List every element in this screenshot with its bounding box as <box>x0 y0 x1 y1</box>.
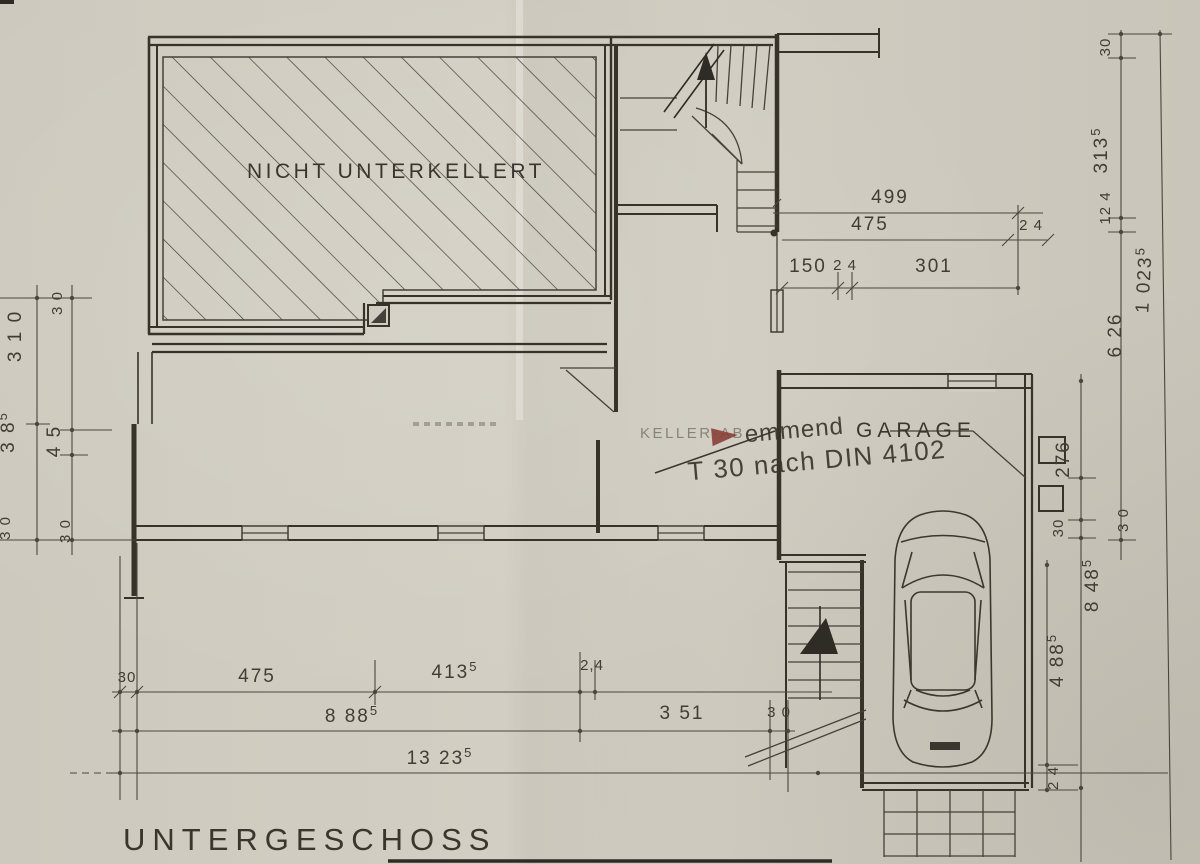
floor-plan: 499 475 2 4 150 2 4 301 30 3135 12 4 6 2… <box>0 0 1200 864</box>
dim-45: 4 5 <box>44 425 65 457</box>
hatched-area <box>148 37 779 334</box>
dim-30-leftbottom2: 3 0 <box>57 519 74 543</box>
dim-30-bottom2: 3 0 <box>767 704 791 721</box>
page-title: UNTERGESCHOSS <box>123 822 496 857</box>
dim-10235: 1 0235 <box>1129 246 1156 314</box>
dim-24-top: 2 4 <box>1019 217 1043 234</box>
dim-24-right: 2 4 <box>1045 766 1062 790</box>
dim-8485: 8 485 <box>1079 558 1103 612</box>
dim-24-top2: 2 4 <box>833 257 857 274</box>
dim-499: 499 <box>871 187 909 208</box>
window-symbols <box>242 290 996 544</box>
dim-3135: 3135 <box>1088 127 1112 174</box>
dim-4135: 4135 <box>432 659 479 683</box>
dim-626: 6 26 <box>1105 313 1126 358</box>
paving-grid <box>884 790 1015 857</box>
dim-30-right2: 3 0 <box>1115 508 1132 532</box>
interior-stairs <box>664 44 778 237</box>
exterior-stairs <box>745 562 866 768</box>
dim-30-leftbottom: 3 0 <box>0 516 14 540</box>
stair-direction-arrow <box>664 44 724 128</box>
dim-475-bottom: 475 <box>238 666 276 687</box>
dim-475-top: 475 <box>851 214 889 235</box>
dim-30-topright: 30 <box>1097 38 1114 57</box>
dim-351: 3 51 <box>660 703 705 724</box>
plan-drawing: 499 475 2 4 150 2 4 301 30 3135 12 4 6 2… <box>0 0 1200 864</box>
fire-door-stamp: emmend T 30 nach DIN 4102 <box>684 404 947 486</box>
dim-13235: 13 235 <box>407 745 474 769</box>
stamp-line1: emmend <box>744 413 845 449</box>
dim-124: 12 4 <box>1097 191 1114 224</box>
dim-385: 3 85 <box>0 411 19 453</box>
dim-310: 3 1 0 <box>5 310 26 362</box>
car <box>893 511 992 767</box>
label-nicht-unterkellert: NICHT UNTERKELLERT <box>247 160 545 183</box>
dim-30-right: 30 <box>1050 519 1067 538</box>
dim-30-bottom: 30 <box>118 669 137 686</box>
dim-24-bottom: 2,4 <box>580 657 604 674</box>
dim-30-lefttop: 3 0 <box>49 291 66 315</box>
exterior-stair-arrow-head <box>800 618 838 654</box>
dim-150: 150 <box>789 256 827 277</box>
dim-301: 301 <box>915 256 953 277</box>
dim-4885: 4 885 <box>1044 633 1068 687</box>
dim-276: 276 <box>1053 440 1074 478</box>
dim-8885: 8 885 <box>325 703 379 727</box>
chimney-symbol <box>368 305 389 326</box>
